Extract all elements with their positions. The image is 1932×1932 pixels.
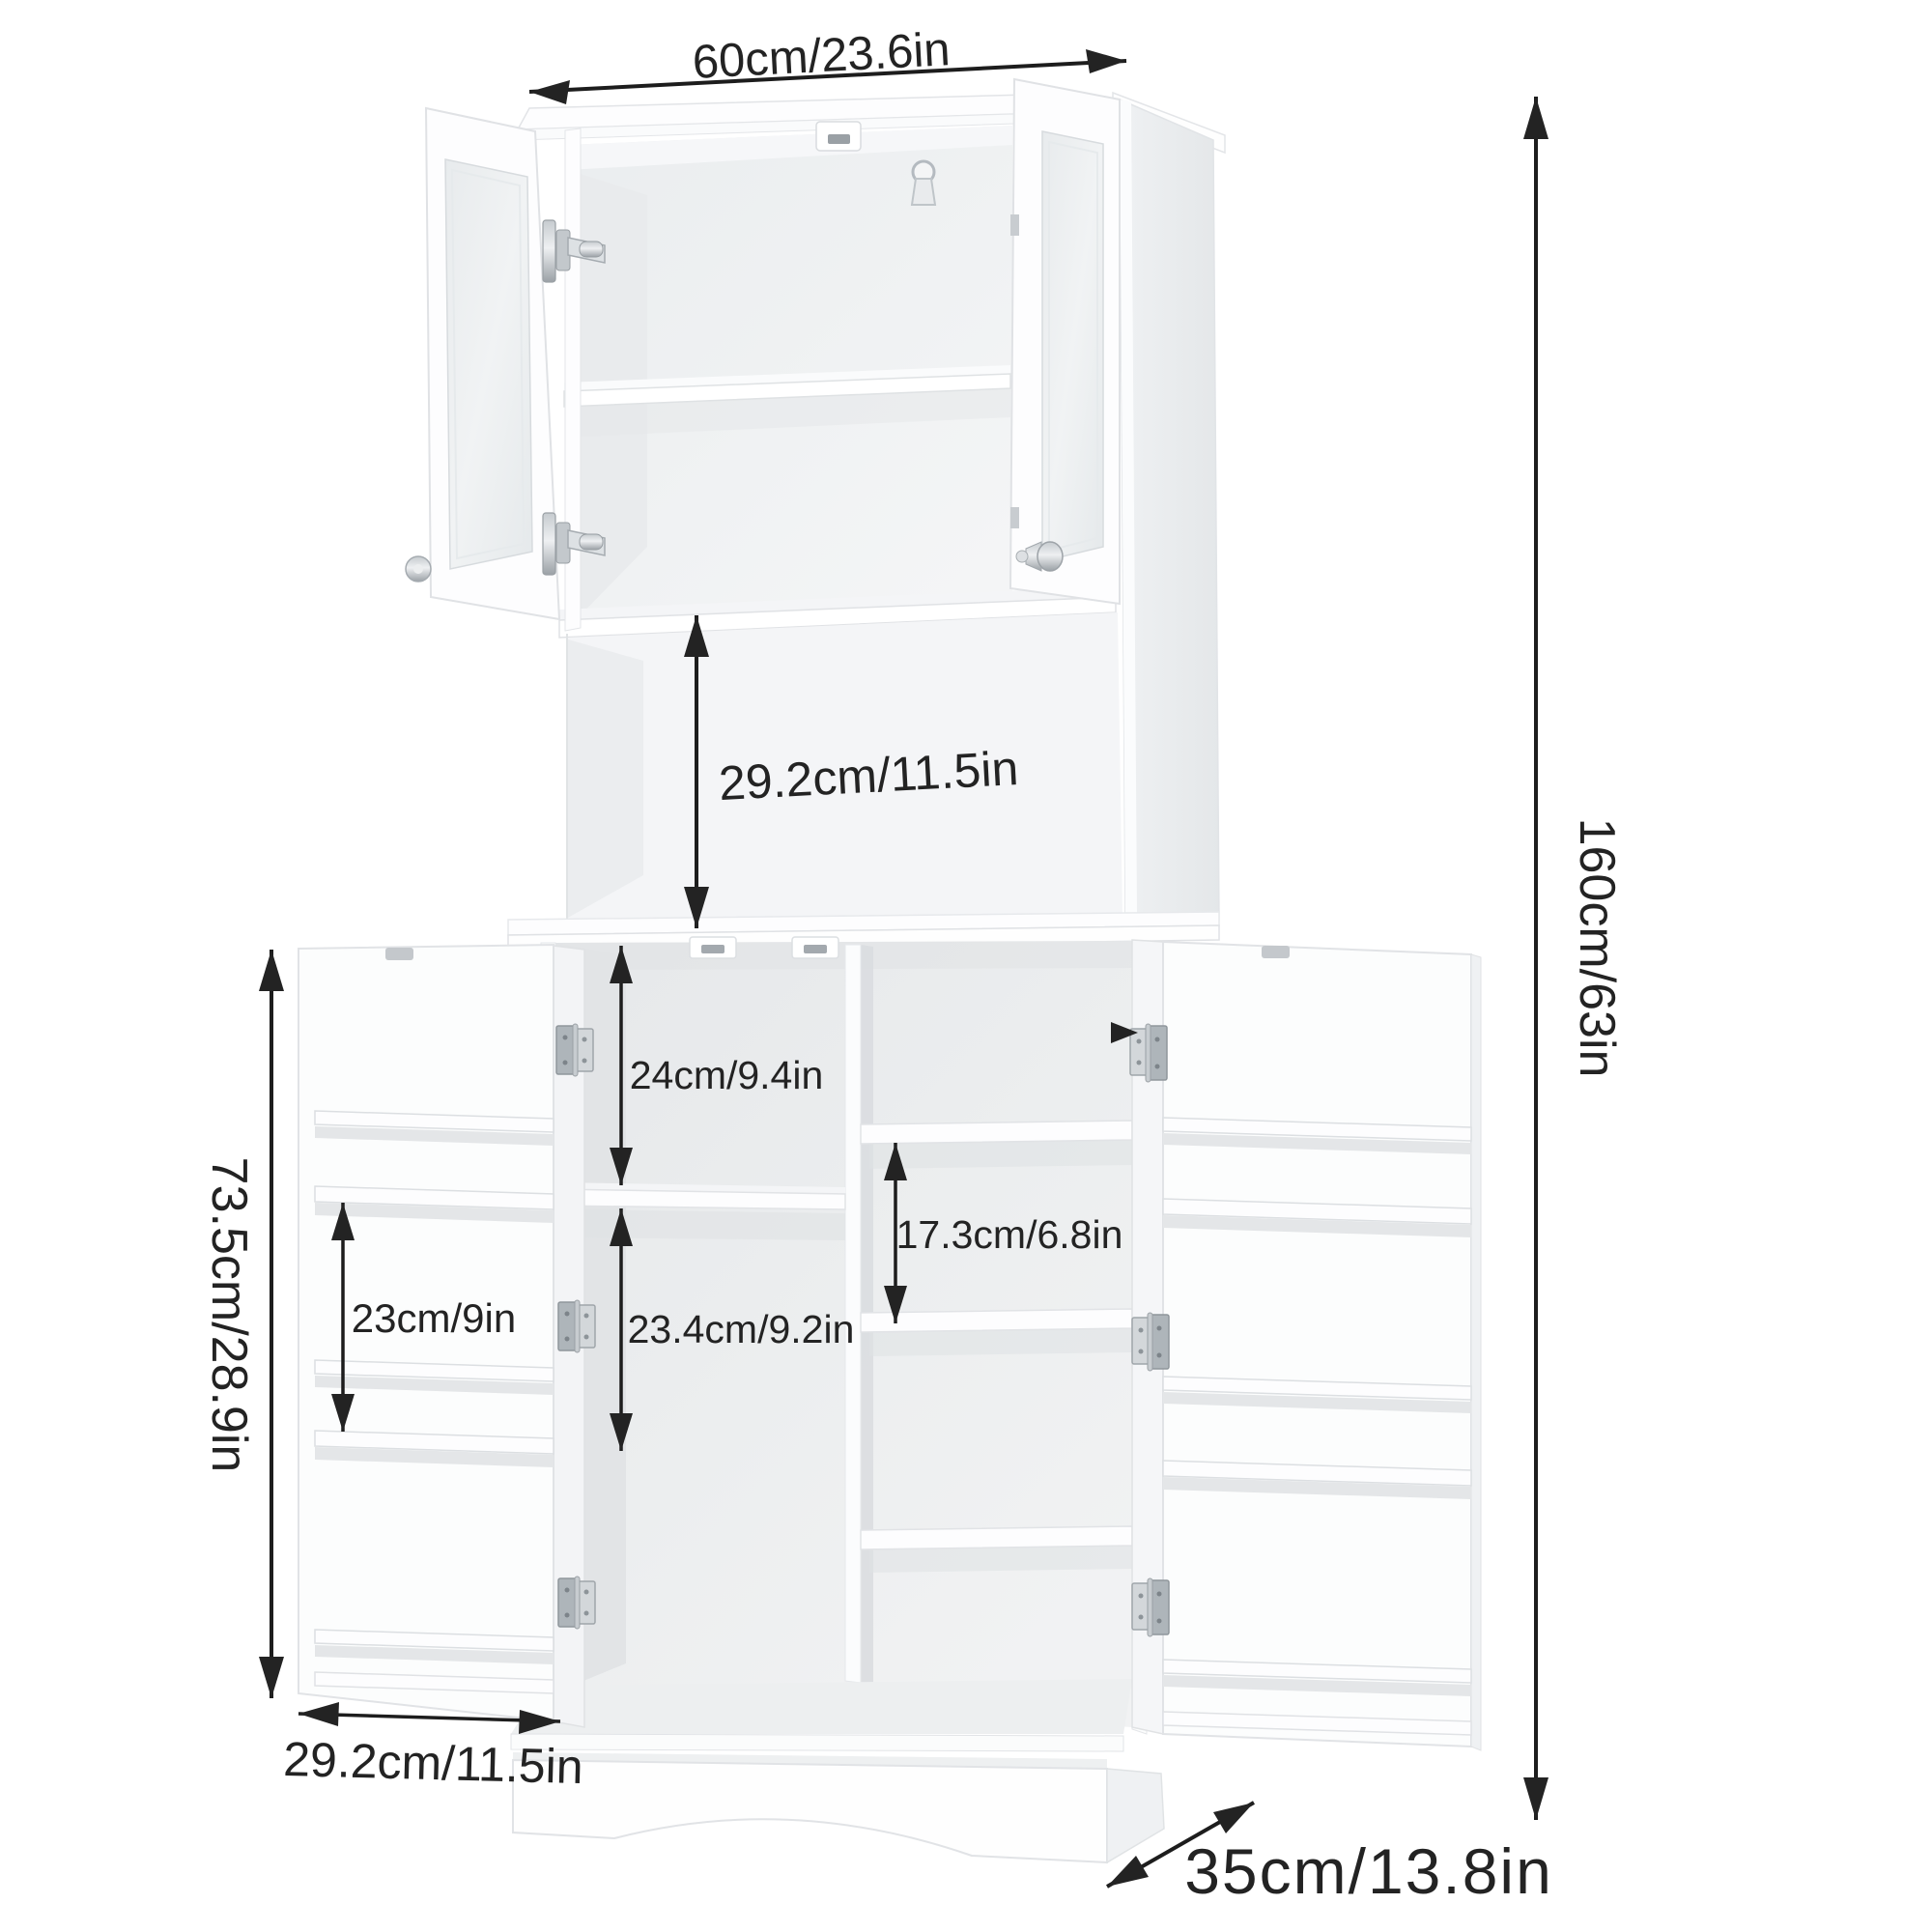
svg-text:73.5cm/28.9in: 73.5cm/28.9in	[201, 1157, 257, 1473]
svg-text:24cm/9.4in: 24cm/9.4in	[630, 1053, 824, 1097]
svg-text:35cm/13.8in: 35cm/13.8in	[1184, 1835, 1553, 1907]
svg-text:17.3cm/6.8in: 17.3cm/6.8in	[896, 1212, 1123, 1257]
svg-text:160cm/63in: 160cm/63in	[1569, 818, 1625, 1078]
svg-text:23.4cm/9.2in: 23.4cm/9.2in	[628, 1307, 855, 1351]
svg-text:23cm/9in: 23cm/9in	[352, 1295, 516, 1341]
svg-text:29.2cm/11.5in: 29.2cm/11.5in	[283, 1732, 584, 1794]
